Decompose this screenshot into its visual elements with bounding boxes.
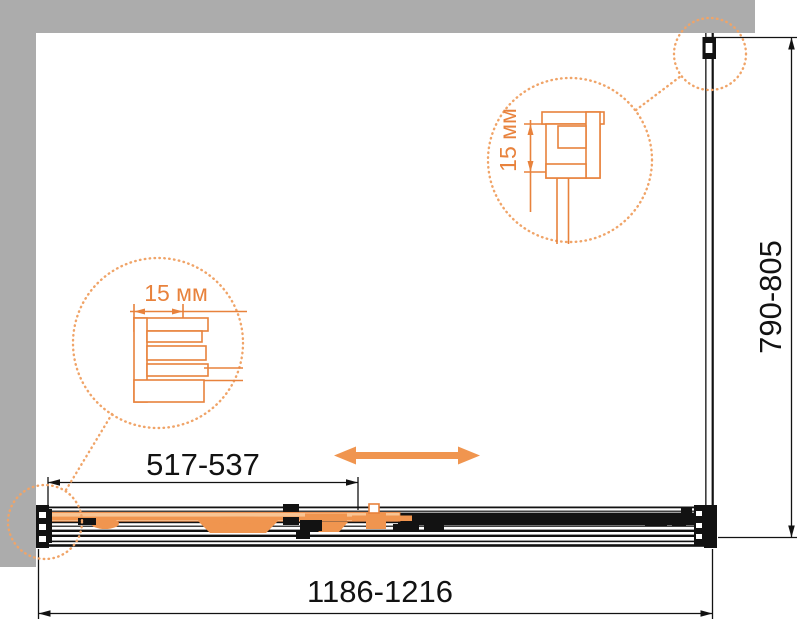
detail-dim-arrow-left xyxy=(134,309,145,315)
detail-circle-right: 15 мм xyxy=(488,78,652,244)
dim-arrow-right xyxy=(701,610,713,617)
door-width-label: 517-537 xyxy=(146,447,260,482)
left-wall xyxy=(0,0,36,567)
shower-enclosure-top-view-diagram: 517-537 1186-1216 790-805 15 мм xyxy=(0,0,800,623)
wall-profile-section-right xyxy=(542,112,604,244)
dim-arrow-top xyxy=(788,38,795,50)
detail-left-label: 15 мм xyxy=(144,280,208,306)
left-wall-profile xyxy=(36,505,52,548)
dimension-overall-width: 1186-1216 xyxy=(39,549,713,619)
dim-arrow-bottom xyxy=(788,526,795,538)
dim-arrow-right xyxy=(346,479,358,486)
technical-drawing-page: 517-537 1186-1216 790-805 15 мм xyxy=(0,0,800,623)
detail-connector-line-right xyxy=(636,76,681,110)
wall-profile-section-left xyxy=(134,318,243,402)
overall-width-label: 1186-1216 xyxy=(307,574,453,609)
detail-dim-arrow-up xyxy=(528,124,534,135)
dimension-side-depth: 790-805 xyxy=(706,38,797,538)
dim-arrow-left xyxy=(48,479,60,486)
detail-circle-left: 15 мм xyxy=(73,258,247,428)
detail-dim-arrow-right xyxy=(172,309,183,315)
top-wall xyxy=(0,0,755,33)
right-corner-connector xyxy=(694,505,717,548)
dim-arrow-left xyxy=(39,610,51,617)
side-depth-label: 790-805 xyxy=(753,240,788,354)
sliding-door-assembly xyxy=(36,504,717,548)
detail-dim-arrow-down xyxy=(528,161,534,172)
side-panel-profile xyxy=(703,33,717,525)
slide-direction-arrow-icon xyxy=(334,447,480,465)
dimension-door-width: 517-537 xyxy=(48,447,358,510)
door-bracket xyxy=(369,504,379,513)
detail-right-label: 15 мм xyxy=(495,108,521,172)
detail-connector-line-left xyxy=(66,414,112,490)
